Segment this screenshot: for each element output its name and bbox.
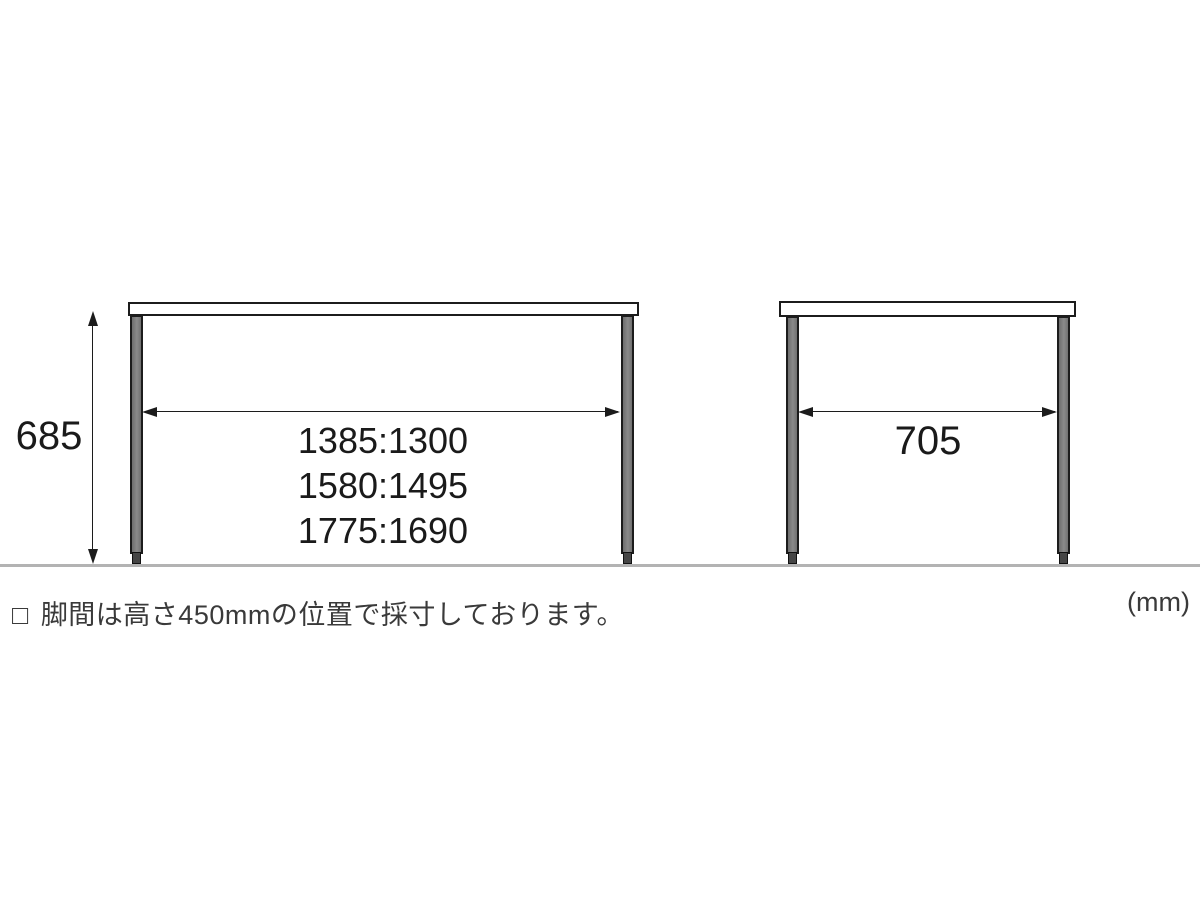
arrow-right-icon: [1042, 407, 1057, 417]
arrow-left-icon: [798, 407, 813, 417]
front-span-label-row: 1580:1495: [263, 463, 503, 508]
front-span-label-row: 1385:1300: [263, 418, 503, 463]
arrow-right-icon: [605, 407, 620, 417]
arrow-left-icon: [142, 407, 157, 417]
side-span-dimension-line: [801, 411, 1055, 412]
dimension-diagram: 685 1385:1300 1580:1495 1775:1690 705: [0, 0, 1200, 900]
floor-line: [0, 564, 1200, 567]
arrow-down-icon: [88, 549, 98, 564]
height-dimension-label: 685: [10, 414, 88, 459]
side-right-leg-foot: [1059, 552, 1068, 564]
front-right-leg-foot: [623, 552, 632, 564]
side-tabletop: [779, 301, 1076, 317]
height-dimension-line: [92, 318, 93, 552]
side-left-leg-foot: [788, 552, 797, 564]
front-right-leg: [621, 315, 634, 554]
front-left-leg-foot: [132, 552, 141, 564]
side-left-leg: [786, 316, 799, 554]
measurement-note-text: 脚間は高さ450mmの位置で採寸しております。: [41, 600, 624, 630]
front-tabletop: [128, 302, 639, 316]
side-right-leg: [1057, 316, 1070, 554]
unit-label: (mm): [1100, 587, 1190, 618]
front-left-leg: [130, 315, 143, 554]
arrow-up-icon: [88, 311, 98, 326]
front-span-labels: 1385:1300 1580:1495 1775:1690: [263, 418, 503, 553]
front-span-dimension-line: [146, 411, 618, 412]
front-span-label-row: 1775:1690: [263, 508, 503, 553]
square-checkbox-icon: □: [12, 600, 29, 630]
measurement-note: □脚間は高さ450mmの位置で採寸しております。: [12, 593, 624, 632]
side-span-label: 705: [868, 419, 988, 464]
